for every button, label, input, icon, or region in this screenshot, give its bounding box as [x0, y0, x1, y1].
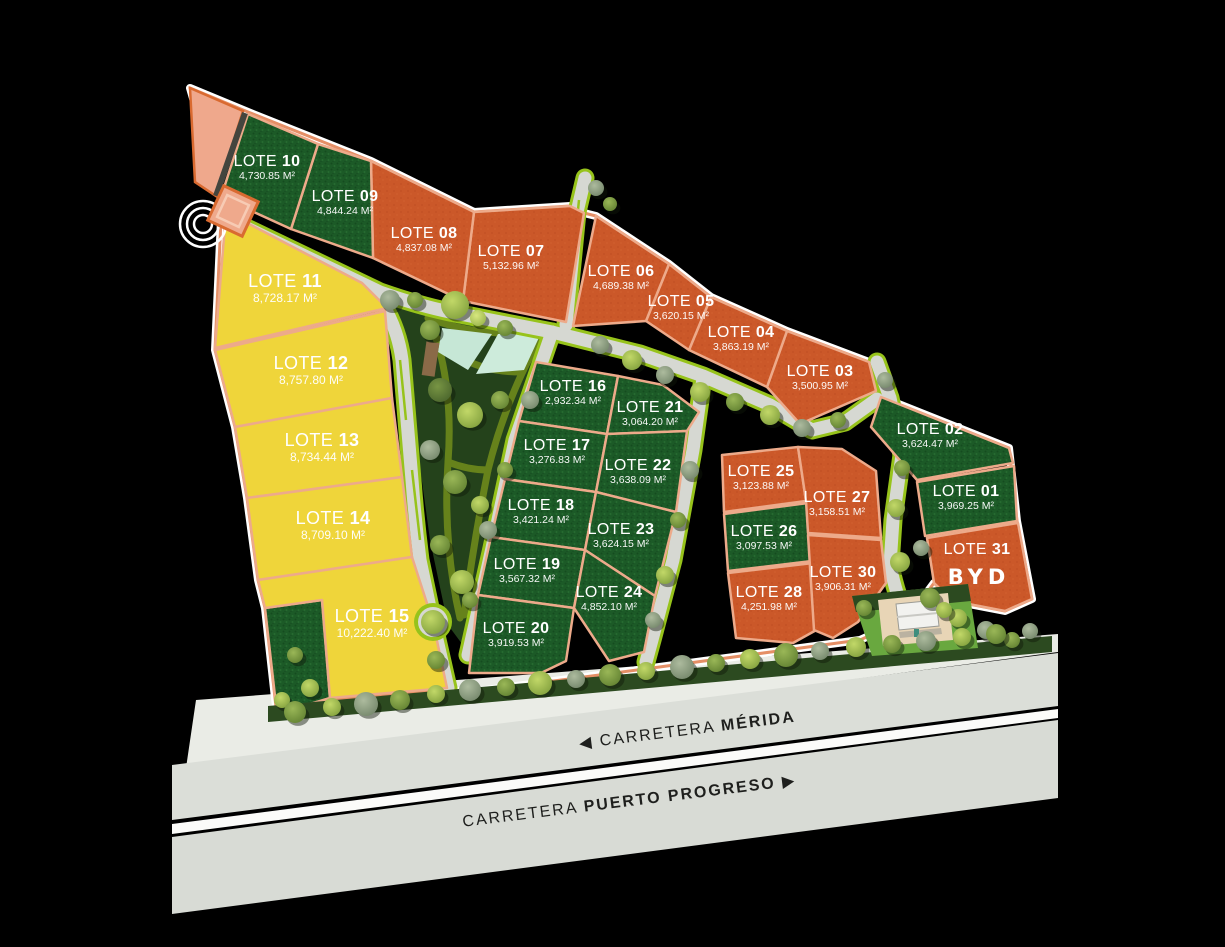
lot-09-label: LOTE 09 — [312, 188, 379, 205]
lot-12-area: 8,757.80 M² — [279, 373, 343, 387]
lot-01-area: 3,969.25 M² — [938, 500, 995, 512]
lot-03-label: LOTE 03 — [787, 363, 854, 380]
tree-icon — [953, 628, 971, 646]
tree-icon — [284, 701, 306, 723]
tree-icon — [916, 631, 936, 651]
tree-icon — [887, 499, 905, 517]
tree-icon — [457, 402, 483, 428]
tree-icon — [920, 588, 940, 608]
lot-16-label: LOTE 16 — [540, 378, 607, 395]
tree-icon — [301, 679, 319, 697]
tree-icon — [599, 664, 621, 686]
tree-icon — [430, 535, 450, 555]
tree-icon — [470, 310, 486, 326]
tree-icon — [421, 610, 445, 634]
tree-icon — [459, 679, 481, 701]
lot-14-label: LOTE 14 — [296, 508, 371, 528]
tree-icon — [528, 671, 552, 695]
tree-icon — [740, 649, 760, 669]
tree-icon — [637, 662, 655, 680]
lot-31-label: LOTE 31 — [944, 541, 1011, 558]
lot-07-label: LOTE 07 — [478, 243, 545, 260]
lot-06-area: 4,689.38 M² — [593, 280, 650, 292]
tree-icon — [670, 655, 694, 679]
lot-28-label: LOTE 28 — [736, 584, 803, 601]
lot-27-area: 3,158.51 M² — [809, 506, 866, 518]
lot-22-label: LOTE 22 — [605, 457, 672, 474]
tree-icon — [913, 540, 929, 556]
lot-27-label: LOTE 27 — [804, 489, 871, 506]
lot-28-area: 4,251.98 M² — [741, 601, 798, 613]
tree-icon — [670, 512, 686, 528]
tree-icon — [1022, 623, 1038, 639]
lot-24-area: 4,852.10 M² — [581, 601, 638, 613]
tree-icon — [645, 612, 661, 628]
tree-icon — [760, 405, 780, 425]
lot-21-label: LOTE 21 — [617, 399, 684, 416]
site-plan-stage: ◀ CARRETERA MÉRIDA CARRETERA PUERTO PROG… — [0, 0, 1225, 947]
tree-icon — [567, 670, 585, 688]
lot-22-area: 3,638.09 M² — [610, 474, 667, 486]
lot-04-label: LOTE 04 — [708, 324, 775, 341]
lot-08-label: LOTE 08 — [391, 225, 458, 242]
tree-icon — [428, 378, 452, 402]
lot-05-label: LOTE 05 — [648, 293, 715, 310]
lot-11-area: 8,728.17 M² — [253, 291, 317, 305]
tree-icon — [726, 393, 744, 411]
lot-26-label: LOTE 26 — [731, 523, 798, 540]
lot-03-area: 3,500.95 M² — [792, 380, 849, 392]
tree-icon — [479, 521, 497, 539]
tree-icon — [793, 419, 811, 437]
tree-icon — [846, 637, 866, 657]
tree-icon — [497, 320, 513, 336]
lot-06-label: LOTE 06 — [588, 263, 655, 280]
lot-18-area: 3,421.24 M² — [513, 514, 570, 526]
tree-icon — [603, 197, 617, 211]
tree-icon — [656, 566, 674, 584]
lot-13-label: LOTE 13 — [285, 430, 360, 450]
tree-icon — [462, 592, 478, 608]
tree-icon — [420, 440, 440, 460]
master-plan-map: ◀ CARRETERA MÉRIDA CARRETERA PUERTO PROG… — [0, 0, 1225, 947]
tree-icon — [497, 678, 515, 696]
tree-icon — [497, 462, 513, 478]
lot-17-label: LOTE 17 — [524, 437, 591, 454]
lot-21-area: 3,064.20 M² — [622, 416, 679, 428]
lot-23-label: LOTE 23 — [588, 521, 655, 538]
lot-14-area: 8,709.10 M² — [301, 528, 365, 542]
tree-icon — [877, 372, 893, 388]
tree-icon — [707, 654, 725, 672]
lot-30-label: LOTE 30 — [810, 564, 877, 581]
tree-icon — [894, 460, 910, 476]
tree-icon — [890, 552, 910, 572]
lot-20-label: LOTE 20 — [483, 620, 550, 637]
lot-26-area: 3,097.53 M² — [736, 540, 793, 552]
lot-13-area: 8,734.44 M² — [290, 450, 354, 464]
byd-logo: BYD — [948, 565, 1011, 589]
lot-02-area: 3,624.47 M² — [902, 438, 959, 450]
tree-icon — [427, 685, 445, 703]
tree-icon — [441, 291, 469, 319]
lot-15-area: 10,222.40 M² — [337, 626, 408, 640]
tree-icon — [856, 600, 872, 616]
lot-23-area: 3,624.15 M² — [593, 538, 650, 550]
lot-18-label: LOTE 18 — [508, 497, 575, 514]
lot-12-label: LOTE 12 — [274, 353, 349, 373]
lot-05-area: 3,620.15 M² — [653, 310, 710, 322]
tree-icon — [450, 570, 474, 594]
lot-24-label: LOTE 24 — [576, 584, 643, 601]
lot-11-label: LOTE 11 — [248, 271, 322, 291]
progreso-arrow-icon: ▶ — [775, 772, 798, 791]
tree-icon — [443, 470, 467, 494]
tree-icon — [811, 642, 829, 660]
tree-icon — [521, 391, 539, 409]
tree-icon — [656, 366, 674, 384]
tree-icon — [883, 635, 901, 653]
tree-icon — [427, 651, 445, 669]
tree-icon — [407, 292, 423, 308]
lot-09-area: 4,844.24 M² — [317, 205, 374, 217]
tree-icon — [420, 320, 440, 340]
lot-15-label: LOTE 15 — [335, 606, 410, 626]
tree-icon — [690, 382, 710, 402]
tree-icon — [622, 350, 642, 370]
lot-25-label: LOTE 25 — [728, 463, 795, 480]
lot-02-label: LOTE 02 — [897, 421, 964, 438]
tree-icon — [287, 647, 303, 663]
tree-icon — [936, 602, 952, 618]
tree-icon — [681, 461, 699, 479]
lot-04-area: 3,863.19 M² — [713, 341, 770, 353]
tree-icon — [591, 336, 609, 354]
lot-25-area: 3,123.88 M² — [733, 480, 790, 492]
lot-10-area: 4,730.85 M² — [239, 170, 296, 182]
tree-icon — [471, 496, 489, 514]
tree-icon — [986, 624, 1006, 644]
merida-arrow-icon: ◀ — [578, 733, 601, 752]
tree-icon — [323, 698, 341, 716]
lot-16-area: 2,932.34 M² — [545, 395, 602, 407]
tree-icon — [390, 690, 410, 710]
tree-icon — [774, 643, 798, 667]
lot-08-area: 4,837.08 M² — [396, 242, 453, 254]
lot-30-area: 3,906.31 M² — [815, 581, 872, 593]
tree-icon — [380, 290, 400, 310]
tree-icon — [354, 692, 378, 716]
lot-20-area: 3,919.53 M² — [488, 637, 545, 649]
lot-19-area: 3,567.32 M² — [499, 573, 556, 585]
tree-icon — [830, 412, 846, 428]
lot-17-area: 3,276.83 M² — [529, 454, 586, 466]
lot-19-label: LOTE 19 — [494, 556, 561, 573]
tree-icon — [588, 180, 604, 196]
lot-01-label: LOTE 01 — [933, 483, 1000, 500]
lot-07-area: 5,132.96 M² — [483, 260, 540, 272]
tree-icon — [491, 391, 509, 409]
lot-10-label: LOTE 10 — [234, 153, 301, 170]
